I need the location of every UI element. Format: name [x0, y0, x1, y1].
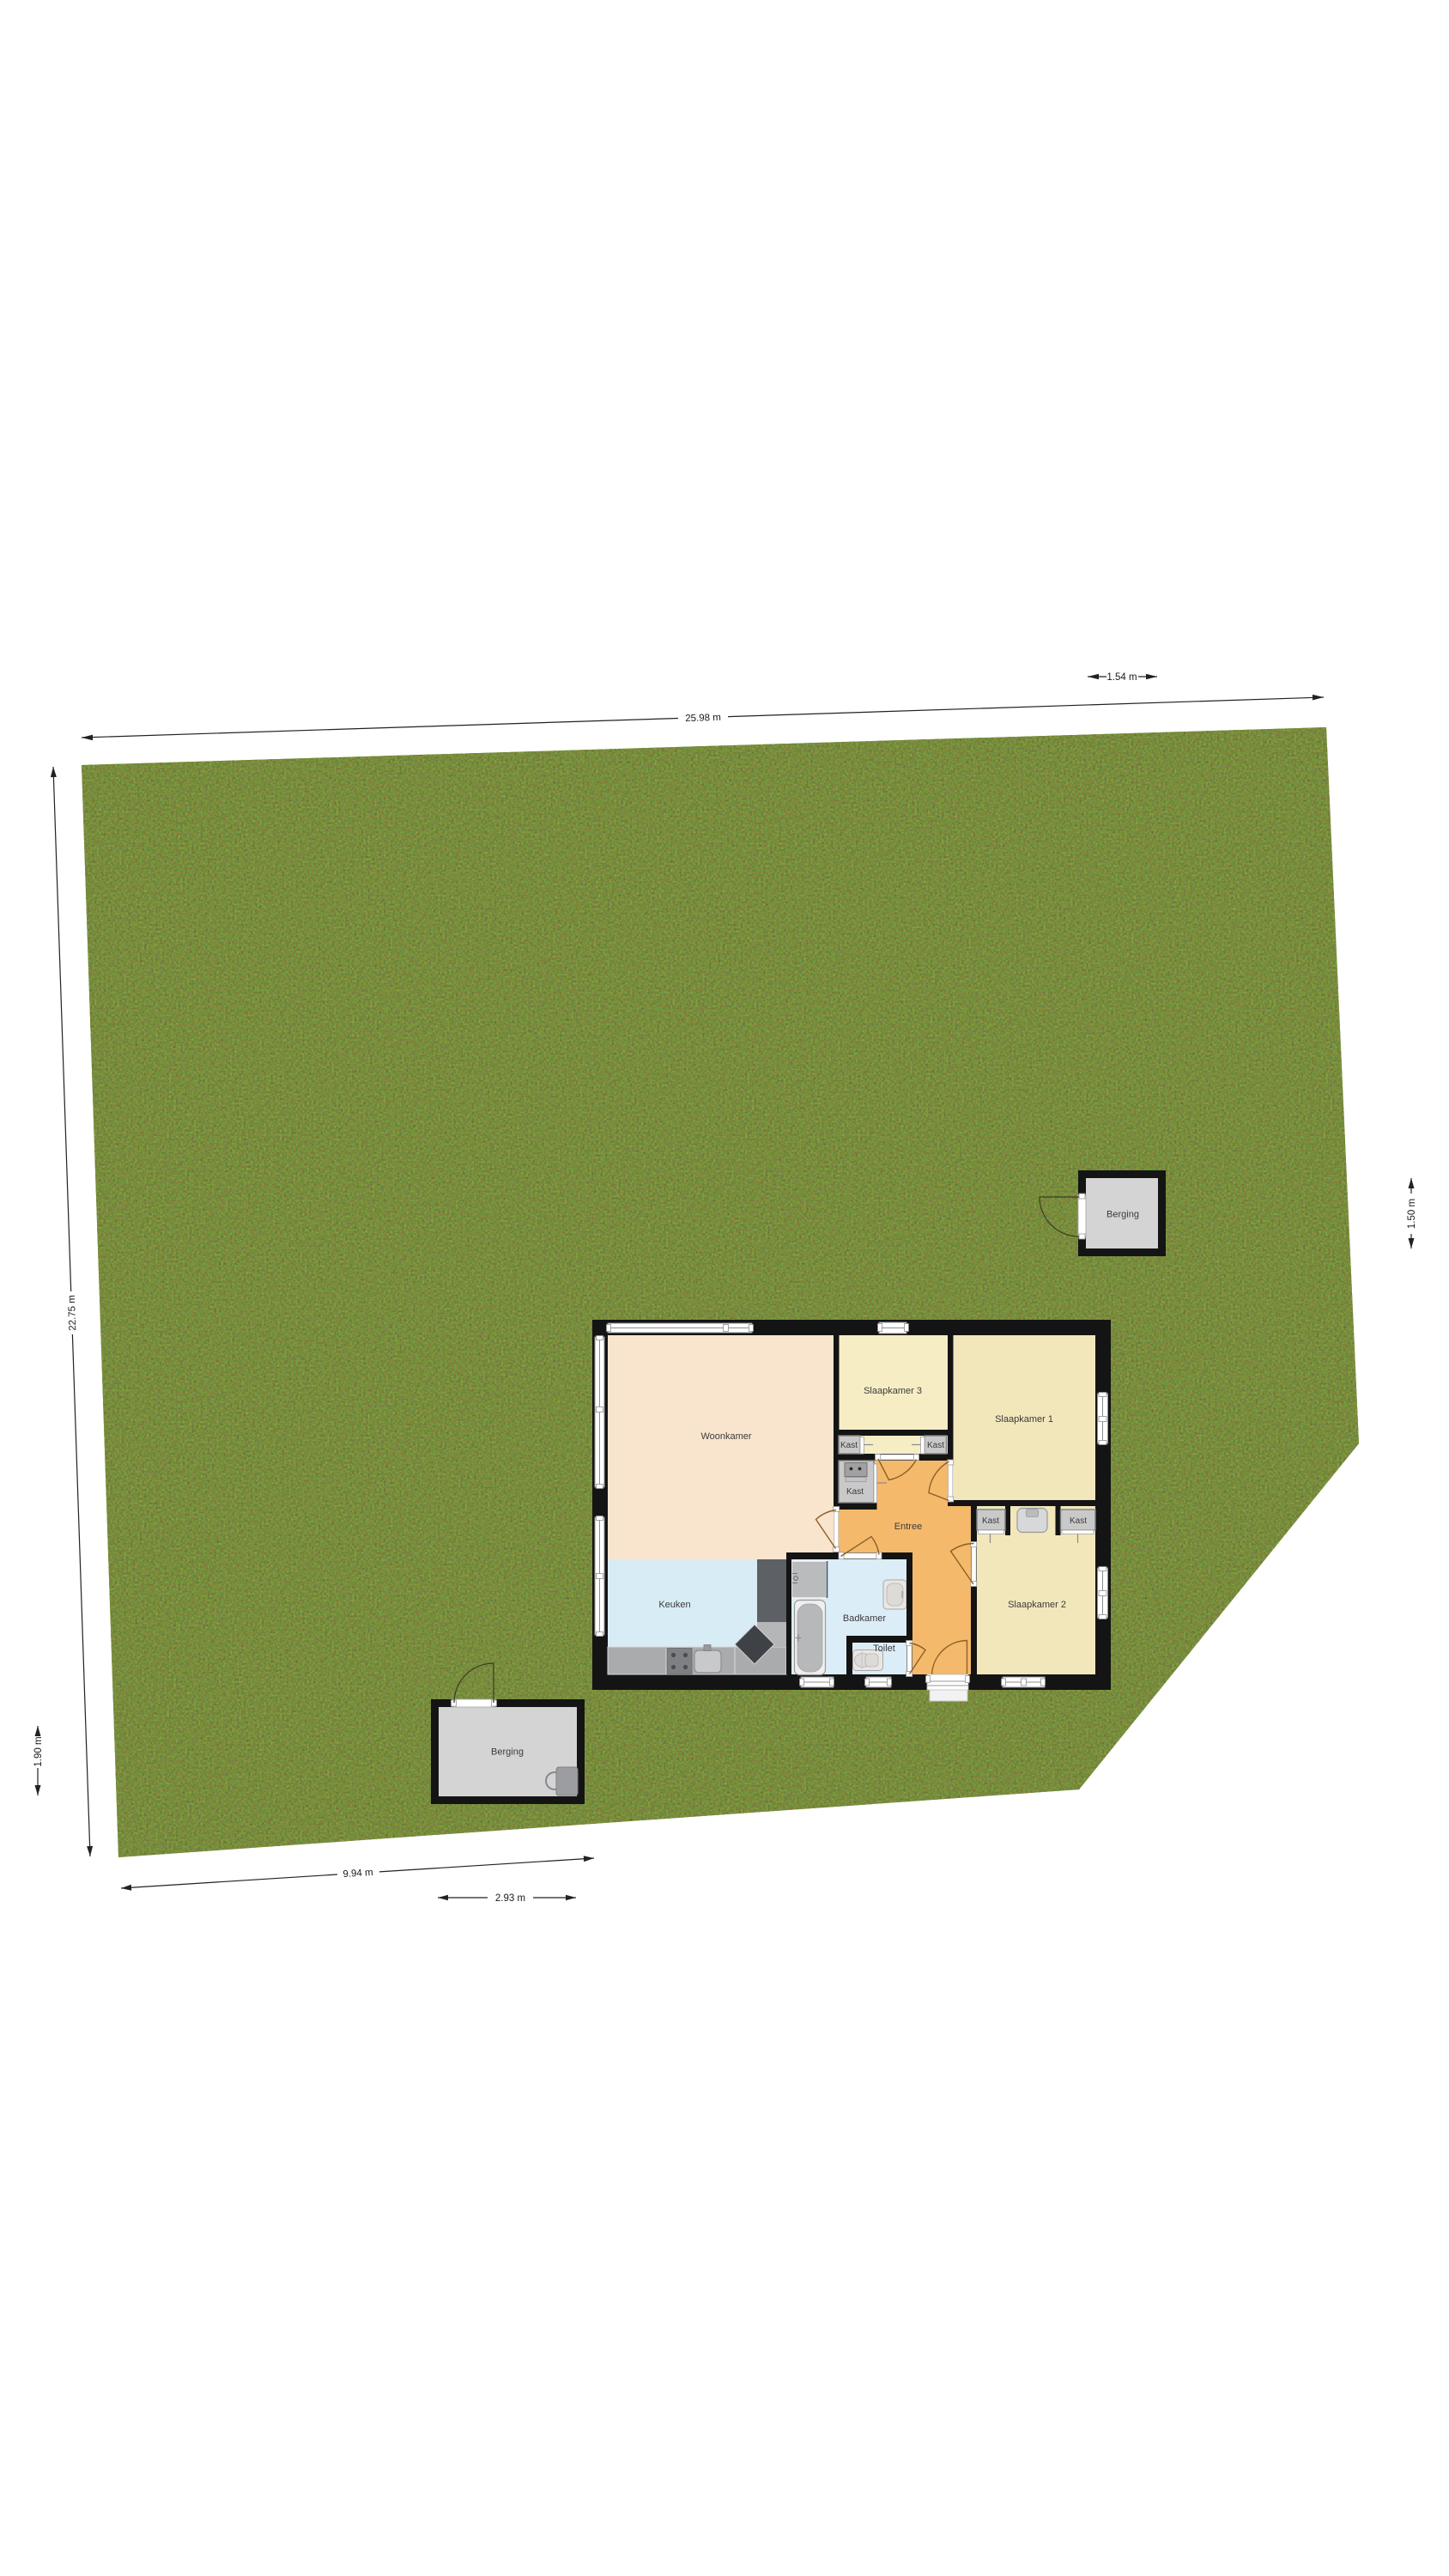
- svg-text:Woonkamer: Woonkamer: [700, 1431, 751, 1442]
- svg-text:2.93 m: 2.93 m: [495, 1893, 525, 1904]
- svg-text:Slaapkamer 2: Slaapkamer 2: [1008, 1600, 1066, 1610]
- svg-text:Kast: Kast: [840, 1441, 858, 1450]
- svg-text:Berging: Berging: [1106, 1210, 1139, 1220]
- svg-text:Keuken: Keuken: [658, 1600, 690, 1610]
- svg-text:1.54 m: 1.54 m: [1106, 672, 1137, 683]
- svg-text:Badkamer: Badkamer: [843, 1613, 886, 1624]
- svg-text:Kast: Kast: [927, 1441, 944, 1450]
- svg-text:Toilet: Toilet: [873, 1643, 895, 1654]
- svg-text:22.75 m: 22.75 m: [67, 1295, 78, 1331]
- svg-text:Slaapkamer 1: Slaapkamer 1: [995, 1414, 1053, 1425]
- svg-text:Kast: Kast: [846, 1487, 864, 1497]
- svg-text:25.98 m: 25.98 m: [685, 713, 721, 724]
- svg-text:Slaapkamer 3: Slaapkamer 3: [864, 1386, 922, 1396]
- svg-text:1.50 m: 1.50 m: [1407, 1199, 1417, 1229]
- svg-text:Berging: Berging: [491, 1747, 524, 1758]
- svg-text:Kast: Kast: [982, 1516, 999, 1526]
- svg-text:Kast: Kast: [1070, 1516, 1087, 1526]
- svg-text:Entree: Entree: [894, 1522, 922, 1532]
- svg-text:9.94 m: 9.94 m: [343, 1868, 373, 1880]
- svg-text:1.90 m: 1.90 m: [33, 1736, 44, 1766]
